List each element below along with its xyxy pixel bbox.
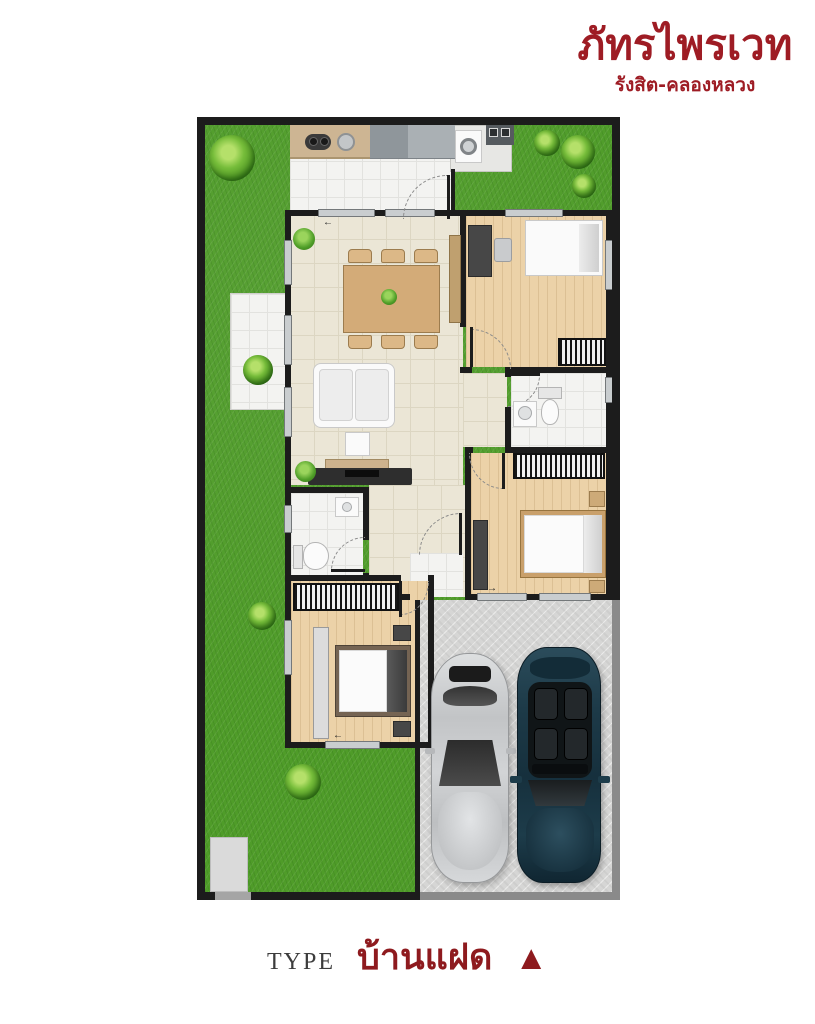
laundry-basin-icon [501,128,510,137]
basin-bowl-icon [518,406,532,420]
bush-icon [534,130,560,156]
window [284,505,292,533]
potted-plant-icon [293,228,315,250]
door-leaf [399,581,402,617]
slide-arrow-icon: → [487,584,497,594]
car-seat [534,688,558,720]
laundry-basin-icon [489,128,498,137]
wall [363,487,369,540]
car-cabin [528,682,592,778]
car-sunroof [449,666,491,682]
bush-icon [248,602,276,630]
car-seat [534,728,558,760]
door-leaf [502,453,505,489]
fence-gate [215,892,251,900]
backyard-lawn: ← → ← [205,125,612,892]
car-windshield [439,740,501,786]
coffee-table [345,432,370,456]
floor-plan: ← → ← [197,117,620,900]
wall [415,600,420,892]
door-leaf [331,569,365,572]
sideboard [449,235,461,323]
page: ภัทรไพรเวท รังสิต-คลองหลวง [0,0,815,1024]
toilet-tank-icon [538,387,562,399]
garage-side-fence [612,600,620,900]
dining-chair [348,249,372,263]
concrete-pad [210,837,248,892]
wardrobe [513,453,605,479]
door-leaf [447,175,450,219]
bed-mattress [524,515,584,573]
caption: TYPE บ้านแฝด ▲ [0,928,815,985]
bed-pillow [579,224,599,272]
wall [285,487,369,493]
window [284,240,292,285]
car-dark [517,647,601,883]
hall-nook-floor [463,373,507,447]
tv-icon [345,470,379,477]
kitchen-sink-icon [337,133,355,151]
car-hood [438,792,502,870]
washer-drum-icon [460,138,477,155]
burner-icon [309,137,318,146]
car-rear-window [443,686,497,706]
window [605,240,612,290]
car-hood [526,808,594,872]
dresser [313,627,329,739]
bush-icon [209,135,255,181]
basin-bowl-icon [342,502,352,512]
nightstand [589,580,605,593]
dining-chair [381,249,405,263]
slide-arrow-icon: ← [333,731,343,741]
wall [285,575,401,581]
dining-chair [414,335,438,349]
driveway-opening [420,892,612,900]
car-seat [564,688,588,720]
dining-chair [381,335,405,349]
toilet-tank-icon [293,545,303,569]
bed-pillow [387,650,407,712]
window [284,387,292,437]
bed-pillow [584,515,602,573]
car-trunk [530,657,590,679]
wardrobe [293,583,399,611]
window [284,315,292,365]
potted-plant-icon [295,461,316,482]
nightstand [393,625,411,641]
car-mirror [425,748,435,754]
car-mirror [506,748,516,754]
window [477,593,527,601]
wardrobe [558,338,606,366]
car-mirror [510,776,522,783]
bush-icon [285,764,321,800]
car-windshield [528,780,592,806]
door-leaf [459,513,462,555]
toilet-icon [541,399,559,425]
brand-subtitle: รังสิต-คลองหลวง [561,70,809,100]
desk-chair [494,238,512,262]
wall [465,447,471,600]
window [318,209,375,217]
bush-icon [243,355,273,385]
brand-logo: ภัทรไพรเวท รังสิต-คลองหลวง [561,22,809,100]
dresser [473,520,488,590]
sofa-cushion [355,369,389,421]
nightstand [393,721,411,737]
sofa-cushion [319,369,353,421]
bush-icon [572,174,596,198]
slide-arrow-icon: ← [323,218,333,228]
window [605,377,612,403]
window [505,209,563,217]
door-leaf [508,373,540,376]
table-plant-icon [381,289,397,305]
triangle-marker-icon: ▲ [514,943,548,974]
toilet-icon [303,542,329,570]
window [284,620,292,675]
car-mirror [598,776,610,783]
car-seat [564,728,588,760]
brand-title: ภัทรไพรเวท [561,22,809,68]
car-dashboard [532,764,588,774]
terrace [230,293,287,410]
nightstand [589,491,605,507]
bed-mattress [339,650,387,712]
type-label: TYPE [267,949,335,976]
dining-chair [414,249,438,263]
dining-chair [348,335,372,349]
car-silver [431,653,509,883]
burner-icon [320,137,329,146]
kitchen-counter-steel [370,125,455,159]
desk [468,225,492,277]
bush-icon [561,135,595,169]
window [325,741,380,749]
wall [451,169,455,211]
door-leaf [470,327,473,367]
window [539,593,591,601]
type-value: บ้านแฝด [357,928,492,985]
